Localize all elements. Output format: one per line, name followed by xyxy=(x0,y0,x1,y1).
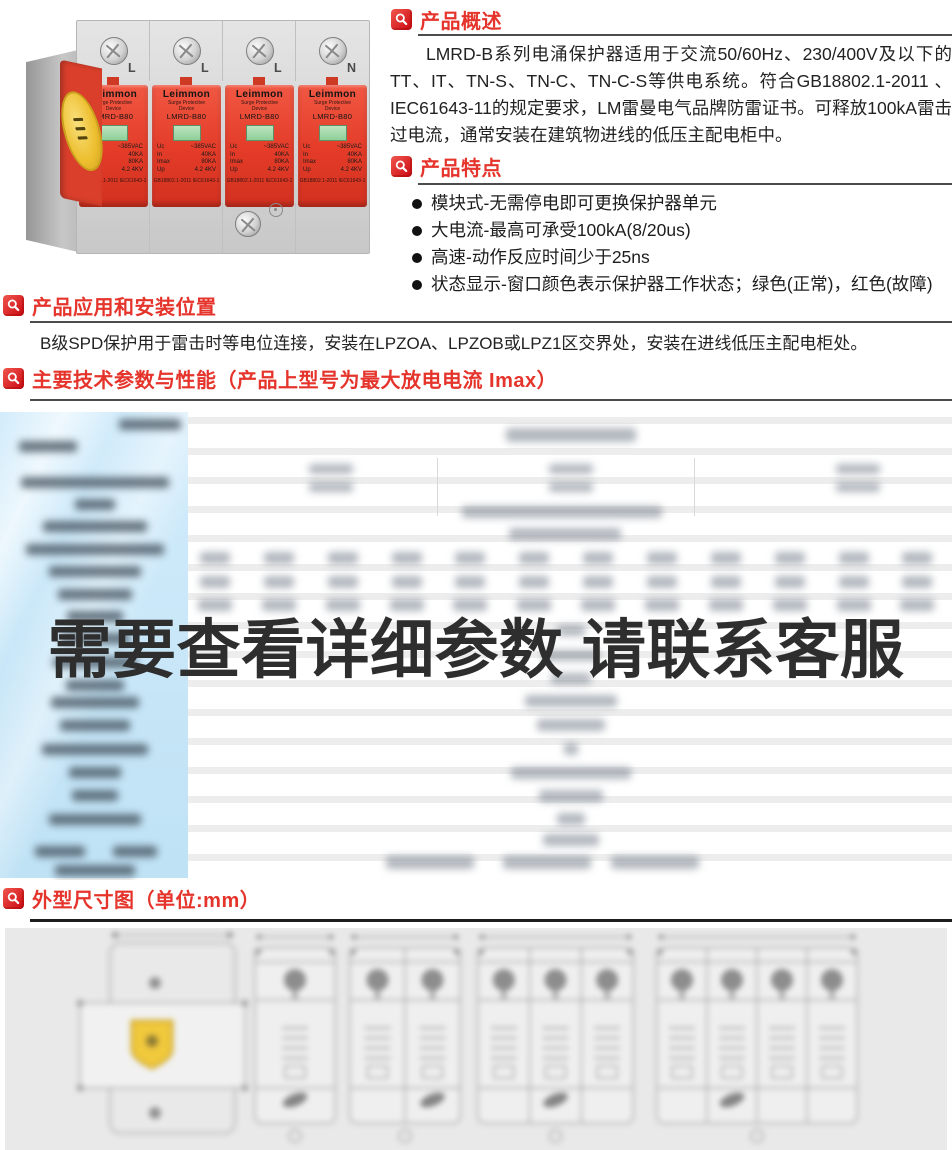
feature-text: 高速-动作反应时间少于25ns xyxy=(431,244,650,271)
blurred-cell xyxy=(328,576,358,588)
section-header-dimensions: 外型尺寸图（单位:mm） xyxy=(3,884,260,913)
magnifier-icon xyxy=(391,156,412,177)
blurred-cell xyxy=(506,428,636,442)
blurred-row-label xyxy=(58,589,132,600)
blurred-cell xyxy=(525,695,617,707)
module-specs: Uc~385VACIn40KAImax80KAUp4.2 4KV xyxy=(152,144,221,174)
front-view-1-pole xyxy=(255,935,335,1143)
status-window-green xyxy=(319,125,347,141)
terminal-screw-icon xyxy=(246,37,274,65)
blurred-cell xyxy=(200,552,230,564)
spec-row: Imax80KA xyxy=(230,159,289,167)
divider xyxy=(149,203,150,253)
blurred-cell xyxy=(773,599,807,611)
blurred-cell xyxy=(309,482,353,492)
blurred-cell xyxy=(900,599,934,611)
overview-paragraph: LMRD-B系列电涌保护器适用于交流50/60Hz、230/400V及以下的TT… xyxy=(390,41,952,149)
blurred-cell xyxy=(455,576,485,588)
section-rule xyxy=(418,34,952,36)
front-view-2-pole xyxy=(350,935,460,1143)
blurred-cell xyxy=(709,599,743,611)
module-specs: Uc~385VACIn40KAImax80KAUp4.2 4KV xyxy=(298,144,367,174)
blurred-cell xyxy=(583,552,613,564)
product-detail-page: LLLN LeimmonSurge ProtectiveDeviceLMRD-B… xyxy=(0,0,952,1150)
blurred-cell xyxy=(519,552,549,564)
blurred-cell xyxy=(326,599,360,611)
application-paragraph: B级SPD保护用于雷击时等电位连接，安装在LPZOA、LPZOB或LPZ1区交界… xyxy=(8,330,952,357)
section-title: 产品特点 xyxy=(420,152,502,181)
section-title: 产品应用和安装位置 xyxy=(32,291,217,320)
terminal-label: L xyxy=(274,61,282,75)
feature-item: 状态显示-窗口颜色表示保护器工作状态；绿色(正常)，红色(故障) xyxy=(412,271,952,298)
label-mark xyxy=(73,118,83,121)
blurred-cell xyxy=(453,599,487,611)
spec-row: Uc~385VAC xyxy=(157,144,216,152)
blurred-cell xyxy=(836,464,880,474)
blurred-cell xyxy=(775,576,805,588)
blurred-cell xyxy=(647,552,677,564)
terminal-label: L xyxy=(128,61,136,75)
blurred-cell xyxy=(386,856,474,869)
blurred-cell xyxy=(711,576,741,588)
blurred-row-label xyxy=(55,865,135,876)
blurred-cell xyxy=(455,552,485,564)
section-rule xyxy=(30,321,952,323)
blurred-row-label xyxy=(72,790,118,801)
status-window-green xyxy=(100,125,128,141)
blurred-cell xyxy=(390,599,424,611)
label-mark xyxy=(75,127,85,130)
status-window-green xyxy=(246,125,274,141)
contact-service-watermark: 需要查看详细参数 请联系客服 xyxy=(48,616,905,684)
blurred-cell xyxy=(564,743,578,755)
blurred-cell xyxy=(543,834,599,846)
spec-row: In40KA xyxy=(230,152,289,160)
blurred-cell xyxy=(198,599,232,611)
blurred-cell xyxy=(264,552,294,564)
section-header-features: 产品特点 xyxy=(391,152,502,181)
dimension-drawings-panel xyxy=(5,928,947,1150)
yellow-shield-logo xyxy=(132,1021,172,1068)
slanted-module xyxy=(60,60,102,207)
blurred-cell xyxy=(309,464,353,474)
bullet-icon xyxy=(412,199,422,209)
blurred-cell xyxy=(392,552,422,564)
blurred-cell xyxy=(462,506,662,518)
blurred-row-label xyxy=(75,499,115,510)
blurred-cell xyxy=(839,576,869,588)
front-view-3-pole xyxy=(478,935,633,1143)
yellow-cert-label xyxy=(54,91,110,172)
blurred-cell xyxy=(611,856,699,869)
feature-item: 模块式-无需停电即可更换保护器单元 xyxy=(412,190,952,217)
terminal-screw-icon xyxy=(173,37,201,65)
spec-row: Up4.2 4KV xyxy=(157,167,216,175)
blurred-cell xyxy=(645,599,679,611)
spd-module: LeimmonSurge ProtectiveDeviceLMRD-B80Uc~… xyxy=(225,85,294,207)
blurred-cell xyxy=(557,813,585,825)
spec-row: Imax80KA xyxy=(303,159,362,167)
blurred-cell xyxy=(200,576,230,588)
feature-item: 高速-动作反应时间少于25ns xyxy=(412,244,952,271)
blurred-row-label xyxy=(43,521,147,532)
blurred-cell xyxy=(503,856,591,869)
blurred-row-label xyxy=(21,477,169,488)
blurred-row-label xyxy=(35,846,85,857)
bullet-icon xyxy=(412,280,422,290)
table-group-divider xyxy=(694,458,695,516)
blurred-row-label xyxy=(49,566,141,577)
blurred-row-label xyxy=(49,814,141,825)
blurred-cell xyxy=(902,552,932,564)
spec-row: Imax80KA xyxy=(157,159,216,167)
blurred-cell xyxy=(581,599,615,611)
magnifier-icon xyxy=(391,9,412,30)
feature-text: 状态显示-窗口颜色表示保护器工作状态；绿色(正常)，红色(故障) xyxy=(431,271,933,298)
spec-row: Up4.2 4KV xyxy=(230,167,289,175)
section-header-overview: 产品概述 xyxy=(391,5,502,34)
blurred-cell xyxy=(517,599,551,611)
blurred-cell xyxy=(264,576,294,588)
terminal-screw-icon xyxy=(100,37,128,65)
spec-row: Uc~385VAC xyxy=(303,144,362,152)
blurred-row-label xyxy=(19,441,77,452)
blurred-cell xyxy=(549,482,593,492)
blurred-cell xyxy=(647,576,677,588)
parameters-table-blurred: 需要查看详细参数 请联系客服 xyxy=(0,412,952,880)
section-title: 外型尺寸图（单位:mm） xyxy=(32,884,260,913)
module-model: LMRD-B80 xyxy=(152,112,221,122)
table-group-divider xyxy=(437,458,438,516)
section-title: 主要技术参数与性能（产品上型号为最大放电电流 Imax） xyxy=(32,364,557,393)
section-rule xyxy=(30,919,952,922)
magnifier-icon xyxy=(3,888,24,909)
spd-module: LeimmonSurge ProtectiveDeviceLMRD-B80Uc~… xyxy=(152,85,221,207)
blurred-row-label xyxy=(42,744,148,755)
blurred-cell xyxy=(902,576,932,588)
module-cert-line: GB18802.1-2011 IEC61643-1 xyxy=(225,178,294,184)
divider xyxy=(295,203,296,253)
blurred-row-label xyxy=(113,846,157,857)
device-base: LLLN LeimmonSurge ProtectiveDeviceLMRD-B… xyxy=(76,20,370,254)
blurred-cell xyxy=(583,576,613,588)
blurred-row-label xyxy=(69,767,121,778)
section-rule xyxy=(30,399,952,401)
section-header-parameters: 主要技术参数与性能（产品上型号为最大放电电流 Imax） xyxy=(3,364,557,393)
section-header-application: 产品应用和安装位置 xyxy=(3,291,217,320)
terminal-label: N xyxy=(347,61,356,75)
spd-module: LeimmonSurge ProtectiveDeviceLMRD-B80Uc~… xyxy=(298,85,367,207)
section-rule xyxy=(418,183,952,185)
spec-row: Up4.2 4KV xyxy=(303,167,362,175)
divider xyxy=(149,21,150,81)
blurred-cell xyxy=(511,767,631,779)
blurred-cell xyxy=(537,719,605,731)
bottom-screw-icon xyxy=(235,211,261,237)
blurred-cell xyxy=(836,482,880,492)
module-cert-line: GB18802.1-2011 IEC61643-1 xyxy=(298,178,367,184)
module-cert-line: GB18802.1-2011 IEC61643-1 xyxy=(152,178,221,184)
blurred-row-label xyxy=(119,419,181,430)
blurred-cell xyxy=(328,552,358,564)
bullet-icon xyxy=(412,253,422,263)
status-window-green xyxy=(173,125,201,141)
feature-list: 模块式-无需停电即可更换保护器单元大电流-最高可承受100kA(8/20us)高… xyxy=(412,190,952,298)
terminal-label: L xyxy=(201,61,209,75)
blurred-cell xyxy=(519,576,549,588)
section-title: 产品概述 xyxy=(420,5,502,34)
feature-text: 大电流-最高可承受100kA(8/20us) xyxy=(431,217,691,244)
blurred-cell xyxy=(711,552,741,564)
blurred-cell xyxy=(539,790,603,802)
front-view-4-pole xyxy=(657,935,857,1143)
side-view-drawing xyxy=(77,932,249,1133)
blurred-cell xyxy=(549,464,593,474)
divider xyxy=(222,21,223,81)
blurred-cell xyxy=(392,576,422,588)
product-photo: LLLN LeimmonSurge ProtectiveDeviceLMRD-B… xyxy=(20,6,385,274)
spec-row: In40KA xyxy=(303,152,362,160)
divider xyxy=(222,203,223,253)
magnifier-icon xyxy=(3,295,24,316)
blurred-row-label xyxy=(51,697,139,708)
blurred-cell xyxy=(775,552,805,564)
spec-row: Uc~385VAC xyxy=(230,144,289,152)
module-specs: Uc~385VACIn40KAImax80KAUp4.2 4KV xyxy=(225,144,294,174)
divider xyxy=(295,21,296,81)
blurred-row-label xyxy=(26,544,164,555)
spec-row: In40KA xyxy=(157,152,216,160)
module-model: LMRD-B80 xyxy=(298,112,367,122)
blurred-cell xyxy=(839,552,869,564)
blurred-cell xyxy=(837,599,871,611)
ground-symbol-icon xyxy=(269,203,283,217)
bullet-icon xyxy=(412,226,422,236)
blurred-row-label xyxy=(60,720,130,731)
label-mark xyxy=(77,136,87,139)
feature-text: 模块式-无需停电即可更换保护器单元 xyxy=(431,190,717,217)
dimension-drawings xyxy=(5,928,947,1150)
blurred-cell xyxy=(262,599,296,611)
terminal-screw-icon xyxy=(319,37,347,65)
magnifier-icon xyxy=(3,368,24,389)
feature-item: 大电流-最高可承受100kA(8/20us) xyxy=(412,217,952,244)
module-model: LMRD-B80 xyxy=(225,112,294,122)
blurred-cell xyxy=(509,528,621,540)
spd-modules: LeimmonSurge ProtectiveDeviceLMRD-B80Uc~… xyxy=(79,85,367,207)
